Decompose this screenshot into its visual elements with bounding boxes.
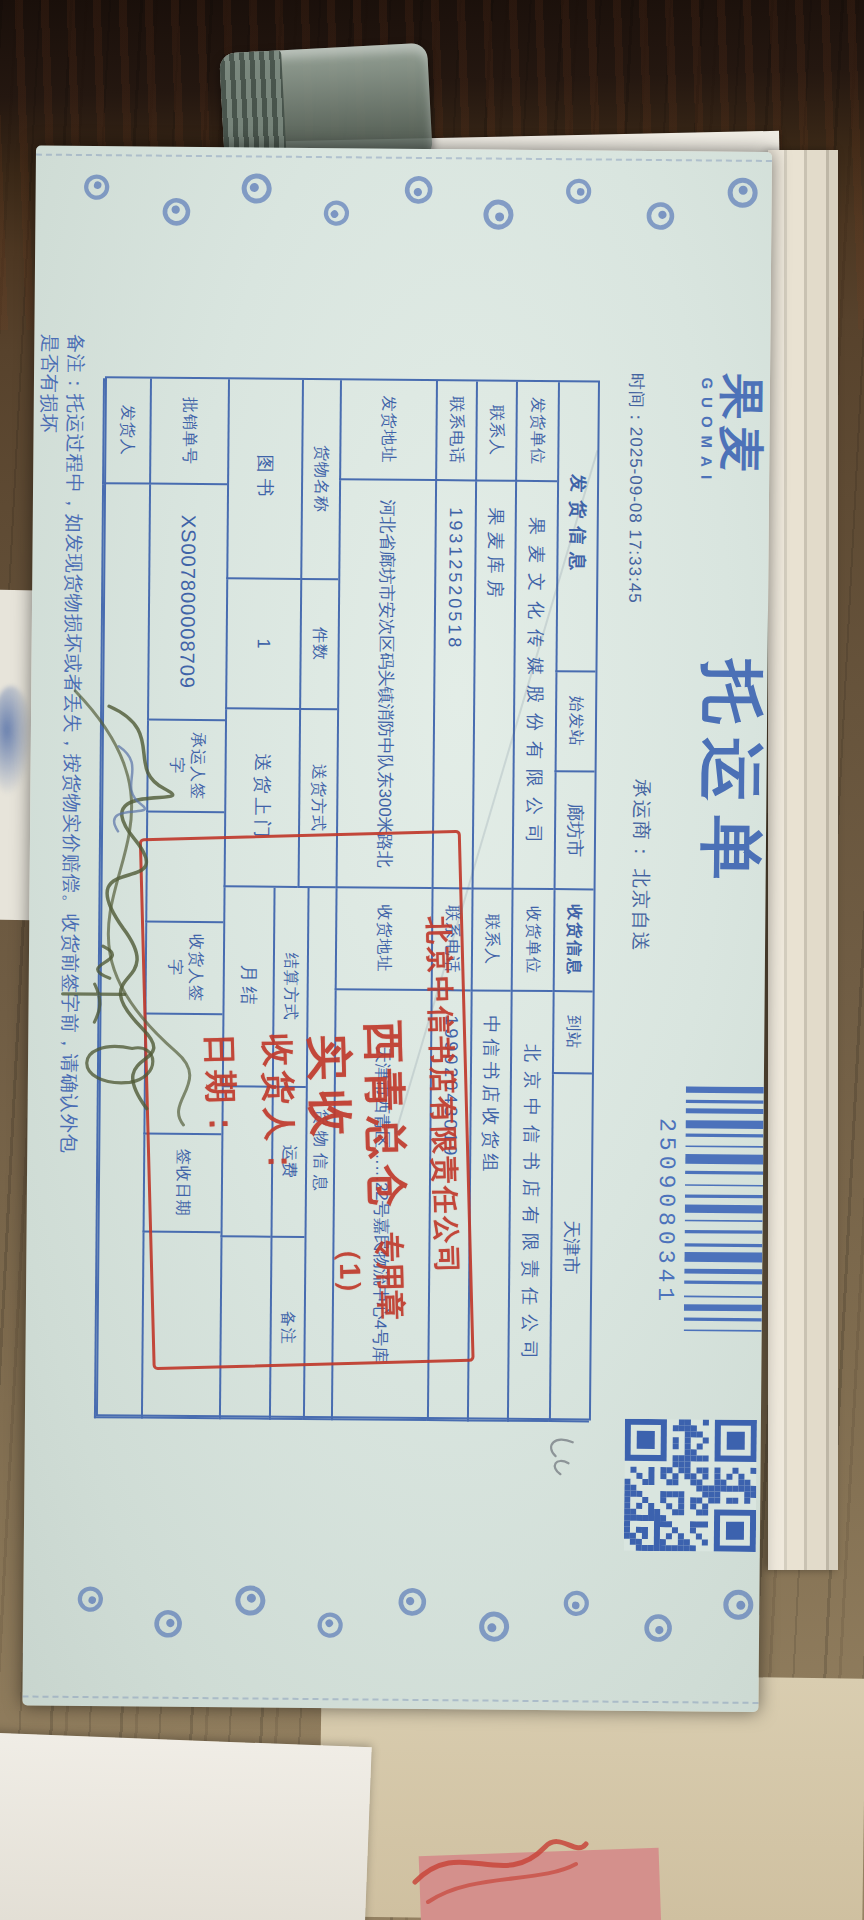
- goods-name-label: 货物名称: [300, 380, 340, 580]
- stamp-company-name: 北京中信书店有限责任公司: [418, 833, 468, 1360]
- receiver-unit-label: 收货单位: [511, 890, 554, 992]
- receiver-section-header: 收货信息: [553, 890, 594, 992]
- perforation-ink-swirl: [723, 1590, 753, 1620]
- stamp-warehouse: 西青总仓: [355, 1020, 416, 1213]
- brand-logo-latin: GUOMAI: [698, 377, 716, 487]
- perforation-ink-swirl: [477, 194, 519, 236]
- perforation-ink-swirl: [403, 174, 434, 205]
- shipper-section-header: 发货信息: [555, 382, 598, 672]
- perforation-ink-swirl: [563, 1590, 590, 1617]
- photo-of-waybill: 果麦 GUOMAI 时间：2025-09-08 17:33:45 托运单 承运商…: [0, 0, 864, 1920]
- print-time: 时间：2025-09-08 17:33:45: [623, 373, 648, 604]
- stamp-received: 实收: [297, 1034, 362, 1148]
- shipper-unit-value: 果麦文化传媒股份有限公司: [512, 482, 558, 890]
- perforation-ink-swirl: [313, 1608, 348, 1643]
- shipper-phone-value: 19312520518: [432, 481, 476, 889]
- origin-value: 廊坊市: [554, 772, 595, 890]
- paper-stack-right-edge: [768, 150, 838, 1570]
- perforation-ink-swirl: [397, 1586, 428, 1617]
- stamp-receiver-label: 收货人：: [254, 1033, 303, 1182]
- form-title: 托运单: [687, 659, 776, 894]
- goods-name-value: 图书: [226, 379, 302, 580]
- origin-label: 始发站: [555, 672, 596, 772]
- pink-note-bottom-right: [419, 1848, 662, 1920]
- time-label: 时间：: [627, 373, 646, 427]
- perforation-ink-swirl: [239, 171, 275, 207]
- perforation-ink-swirl: [728, 178, 758, 208]
- white-paper-bottom: [0, 1733, 372, 1920]
- receiver-contact-label: 联系人: [471, 889, 512, 991]
- perforation-ink-swirl: [641, 197, 680, 236]
- shipper-contact-value: 果麦库房: [472, 481, 516, 889]
- batch-number-label: 批销单号: [149, 379, 228, 486]
- stamp-date-label: 日期：: [196, 1033, 244, 1145]
- perforation-ink-swirl: [565, 178, 592, 205]
- small-pen-mark: [551, 1440, 573, 1475]
- perforation-ink-swirl: [473, 1606, 515, 1648]
- red-receipt-stamp: 北京中信书店有限责任公司 西青总仓 专用章（1） 实收 收货人： 日期：: [139, 830, 475, 1370]
- shipper-address-label: 发货地址: [339, 380, 436, 481]
- qr-code: [624, 1419, 757, 1552]
- shipper-address-value: 河北省廊坊市安次区码头镇消防中队东300米路北: [336, 480, 436, 889]
- shipper-sign-label: 发货人: [102, 378, 150, 484]
- shipper-phone-label: 联系电话: [435, 381, 476, 481]
- carrier-sign-label: 承运人签字: [146, 721, 225, 814]
- carrier-value: 北京自送: [630, 869, 652, 953]
- perforation-ink-swirl: [75, 1583, 106, 1614]
- brand-logo: 果麦: [709, 373, 772, 478]
- perforation-dash-line: [36, 154, 772, 162]
- pieces-value: 1: [225, 579, 300, 710]
- pieces-label: 件数: [299, 580, 338, 710]
- perforation-ink-swirl: [158, 193, 196, 231]
- receiver-unit-value: 北京中信书店有限责任公司: [507, 992, 553, 1422]
- waybill-form-paper: 果麦 GUOMAI 时间：2025-09-08 17:33:45 托运单 承运商…: [22, 146, 772, 1712]
- shipper-contact-label: 联系人: [475, 381, 516, 481]
- batch-number-value: XS007800008709: [147, 485, 227, 722]
- stamp-seal-suffix: 专用章（1）: [328, 1232, 411, 1362]
- carrier-line: 承运商：北京自送: [627, 779, 655, 953]
- perforation-ink-swirl: [149, 1605, 187, 1643]
- perforation-dash-line: [22, 1696, 758, 1704]
- perforation-ink-swirl: [639, 1609, 678, 1648]
- perforation-ink-swirl: [319, 196, 354, 231]
- perforation-ink-swirl: [81, 171, 112, 202]
- time-value: 2025-09-08 17:33:45: [625, 427, 646, 604]
- barcode: [684, 1086, 764, 1339]
- remark-note-line2: 是否有损坏: [36, 334, 63, 434]
- remark-note-line1: 备注：托运过程中，如发现货物损坏或者丢失，按货物实价赔偿。收货前签字前，请确认外…: [55, 334, 88, 1154]
- perforation-ink-swirl: [232, 1583, 268, 1619]
- barcode-number: 2509080341: [652, 1086, 680, 1338]
- destination-label: 到站: [552, 992, 593, 1074]
- shipper-unit-label: 发货单位: [515, 382, 558, 482]
- carrier-label: 承运商：: [631, 779, 653, 863]
- destination-value: 天津市: [549, 1074, 592, 1422]
